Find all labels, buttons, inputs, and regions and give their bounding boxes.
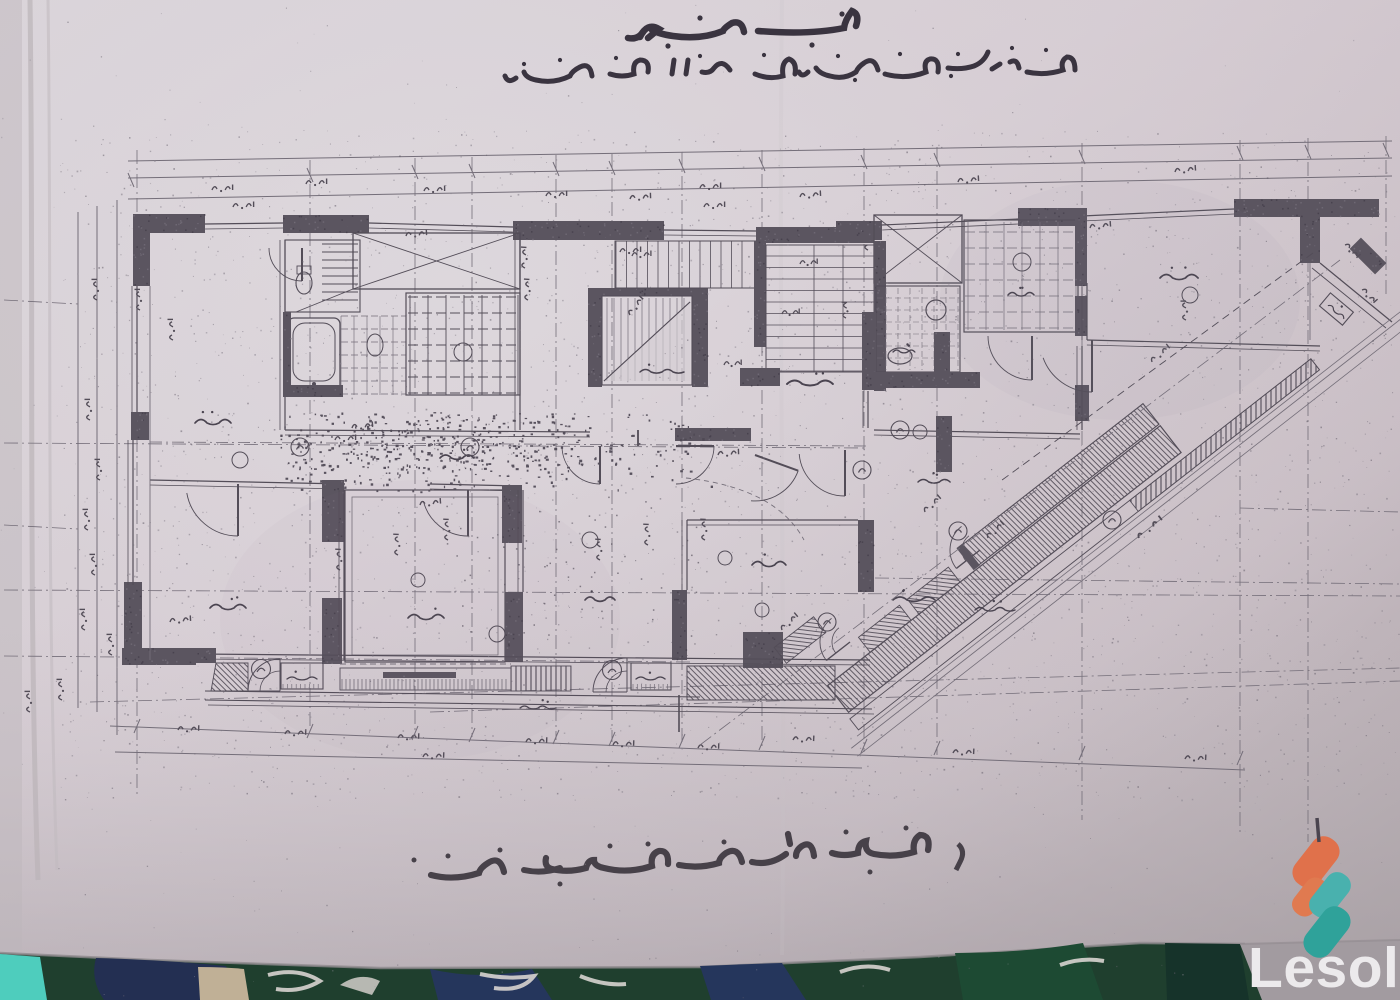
svg-text:Lesoll: Lesoll [1248,936,1400,1000]
